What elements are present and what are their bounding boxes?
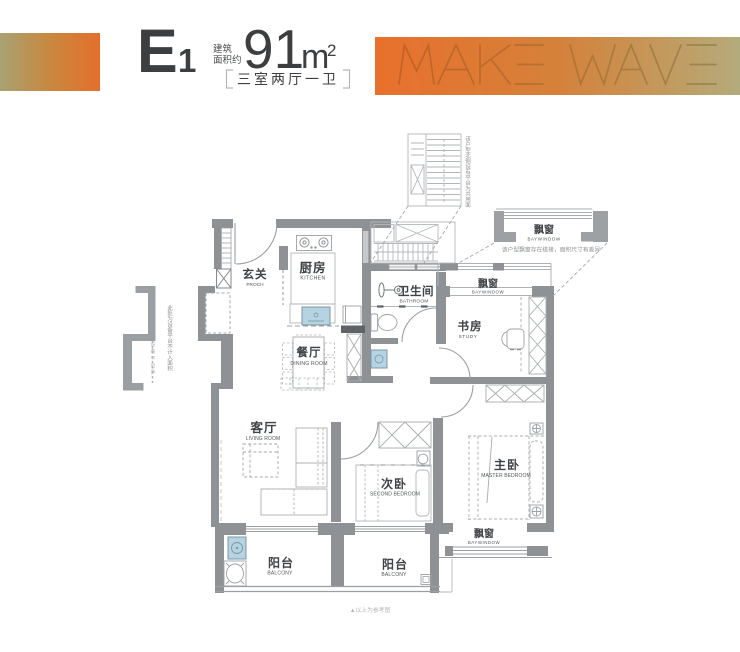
- svg-text:BATHROOM: BATHROOM: [400, 299, 429, 305]
- svg-text:STUDY: STUDY: [459, 334, 478, 340]
- svg-text:2: 2: [327, 41, 336, 60]
- svg-text:SECOND BEDROOM: SECOND BEDROOM: [370, 492, 420, 498]
- svg-text:LIVING ROOM: LIVING ROOM: [246, 436, 280, 442]
- svg-text:KITCHEN: KITCHEN: [300, 276, 325, 282]
- svg-text:该户型飘窗存在搭接，面积尺寸有差异: 该户型飘窗存在搭接，面积尺寸有差异: [502, 246, 601, 254]
- svg-text:该户型北侧设有平台为共用面: 该户型北侧设有平台为共用面: [465, 135, 471, 209]
- svg-text:书房: 书房: [458, 319, 483, 333]
- svg-text:餐厅: 餐厅: [296, 345, 322, 359]
- svg-text:客厅: 客厅: [249, 420, 277, 435]
- svg-text:建筑: 建筑: [213, 43, 233, 55]
- svg-text:阳台: 阳台: [382, 557, 408, 572]
- svg-text:此处为设备平台不计入面积: 此处为设备平台不计入面积: [167, 304, 173, 373]
- svg-text:MASTER BEDROOM: MASTER BEDROOM: [481, 473, 530, 479]
- svg-text:▲以上为参考图: ▲以上为参考图: [350, 606, 391, 614]
- svg-text:次卧: 次卧: [381, 476, 407, 491]
- svg-text:主卧: 主卧: [494, 457, 520, 472]
- svg-text:飘窗: 飘窗: [474, 527, 494, 540]
- svg-text:DINING ROOM: DINING ROOM: [290, 361, 327, 367]
- svg-text:1: 1: [178, 42, 196, 79]
- svg-text:E: E: [137, 17, 178, 85]
- svg-text:BALCONY: BALCONY: [381, 572, 407, 578]
- svg-text:飘窗: 飘窗: [478, 277, 498, 290]
- svg-text:玄关: 玄关: [243, 267, 268, 281]
- svg-text:BALCONY: BALCONY: [267, 571, 293, 577]
- svg-text:PROCH: PROCH: [246, 282, 264, 288]
- svg-text:飘窗: 飘窗: [534, 223, 554, 236]
- svg-text:三室两厅一卫: 三室两厅一卫: [237, 71, 339, 87]
- svg-text:面积约: 面积约: [213, 54, 242, 66]
- svg-text:厨房: 厨房: [299, 260, 326, 275]
- svg-text:BAYWINDOW: BAYWINDOW: [527, 237, 560, 242]
- svg-text:卫生间: 卫生间: [398, 284, 434, 298]
- svg-text:阳台: 阳台: [268, 555, 294, 570]
- svg-text:BAYWINDOW: BAYWINDOW: [468, 540, 501, 545]
- svg-text:BAYWINDOW: BAYWINDOW: [472, 290, 505, 295]
- svg-text:设备平台界: 设备平台界: [150, 341, 155, 376]
